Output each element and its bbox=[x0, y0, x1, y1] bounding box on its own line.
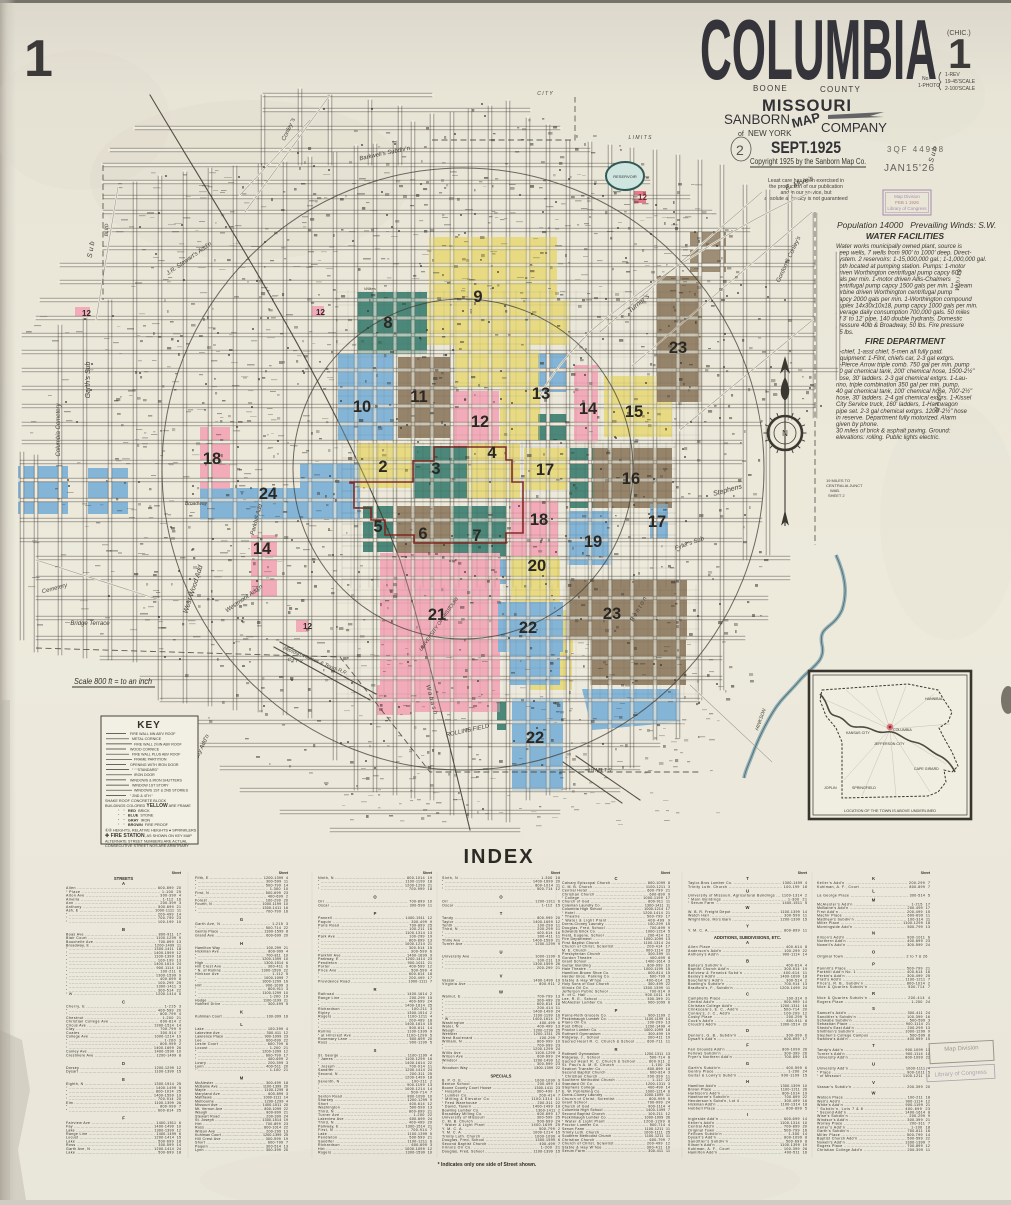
svg-text:“ W .........................: “ W ....................................… bbox=[66, 992, 181, 996]
svg-text:turbine driven Worthington cen: turbine driven Worthington centrifugal p… bbox=[836, 290, 953, 296]
svg-text:Grand Ave ....................: Grand Ave ..............................… bbox=[195, 933, 288, 937]
svg-text:duplex 14x30x10x18, pump capcy: duplex 14x30x10x18, pump capcy 1000 gals… bbox=[836, 303, 978, 309]
svg-text:3: 3 bbox=[431, 460, 440, 478]
svg-text:No.: No. bbox=[922, 76, 930, 82]
svg-text:22: 22 bbox=[526, 729, 544, 747]
svg-text:8: 8 bbox=[383, 314, 392, 332]
svg-text:“ “ RED BRICK: “ “ RED BRICK bbox=[118, 809, 150, 813]
svg-text:1-chief, 1-asst chief, 5-men a: 1-chief, 1-asst chief, 5-men all fully p… bbox=[836, 349, 943, 355]
svg-text:FIRE WALL PLUS ABV ROOF: FIRE WALL PLUS ABV ROOF bbox=[132, 753, 181, 757]
svg-text:Sheet: Sheet bbox=[279, 871, 289, 875]
svg-text:13: 13 bbox=[532, 385, 550, 403]
svg-text:Y. M. C. A. ..................: Y. M. C. A. ............................… bbox=[688, 928, 807, 932]
svg-text:OPENING WITH IRON DOOR: OPENING WITH IRON DOOR bbox=[130, 763, 179, 767]
svg-text:Wilkes: Wilkes bbox=[364, 286, 376, 291]
svg-text:19-45′SCALE: 19-45′SCALE bbox=[945, 79, 976, 85]
svg-text:14: 14 bbox=[579, 400, 598, 418]
svg-text:14: 14 bbox=[253, 540, 272, 558]
svg-text:16: 16 bbox=[622, 470, 640, 488]
svg-text:pipe set. 2-3 gal chemical ext: pipe set. 2-3 gal chemical extgrs. 1200'… bbox=[835, 408, 968, 415]
svg-text:Rogers Place .................: Rogers Place ...........................… bbox=[817, 1000, 930, 1004]
svg-text:absolute accuracy is not guara: absolute accuracy is not guaranteed bbox=[764, 196, 847, 202]
svg-text:INDEX: INDEX bbox=[463, 846, 534, 868]
svg-text:WINDOWS & IRON SHUTTERS: WINDOWS & IRON SHUTTERS bbox=[130, 778, 183, 782]
svg-text:WATER FACILITIES: WATER FACILITIES bbox=[866, 231, 945, 241]
svg-text:L I M I T S: L I M I T S bbox=[589, 768, 613, 774]
svg-text:“ ............................: “ ......................................… bbox=[318, 887, 432, 891]
svg-text:Columbia Cemetery: Columbia Cemetery bbox=[56, 402, 62, 456]
svg-text:Bradford’s, F., Subdiv’n .....: Bradford’s, F., Subdiv’n ...............… bbox=[688, 986, 807, 990]
svg-text:“ “ BLUE STONE: “ “ BLUE STONE bbox=[118, 814, 154, 818]
svg-text:Sheet: Sheet bbox=[423, 871, 433, 875]
svg-text:Sheet: Sheet bbox=[798, 871, 808, 875]
svg-text:Hubbell Drive ................: Hubbell Drive ..........................… bbox=[195, 1002, 288, 1006]
svg-text:LOCATION OF THE TOWN IS ABOVE: LOCATION OF THE TOWN IS ABOVE UNDERLINED bbox=[844, 808, 936, 813]
svg-text:KEY: KEY bbox=[137, 720, 161, 731]
svg-text:Dysart’s Add’n ...............: Dysart’s Add’n .........................… bbox=[688, 1037, 807, 1041]
svg-text:Vassar’s Subdiv’n ............: Vassar’s Subdiv’n ......................… bbox=[817, 1085, 930, 1089]
svg-text:12: 12 bbox=[471, 413, 489, 431]
svg-text:12: 12 bbox=[638, 193, 647, 202]
svg-text:12: 12 bbox=[82, 309, 91, 318]
svg-text:Average daily consumption 700,: Average daily consumption 700,000 gals. … bbox=[835, 310, 970, 316]
svg-text:HANNIBAL: HANNIBAL bbox=[925, 697, 943, 701]
svg-text:KANSAS CITY: KANSAS CITY bbox=[846, 731, 870, 735]
svg-text:Sheet: Sheet bbox=[661, 871, 671, 875]
svg-text:FIRE WALL 2½IN ABV ROOF: FIRE WALL 2½IN ABV ROOF bbox=[134, 742, 182, 746]
svg-text:“ 2ND & 4TH “: “ 2ND & 4TH “ bbox=[130, 794, 154, 798]
svg-text:Scale 800 ft = to an inch: Scale 800 ft = to an inch bbox=[74, 677, 152, 686]
svg-text:capcy 2000 gals per min. 1-Wor: capcy 2000 gals per min. 1-Worthington c… bbox=[836, 297, 972, 303]
svg-text:18: 18 bbox=[530, 511, 548, 529]
svg-text:Map Division: Map Division bbox=[894, 194, 920, 199]
svg-text:FIRE DEPARTMENT: FIRE DEPARTMENT bbox=[865, 336, 946, 346]
svg-text:1: 1 bbox=[948, 30, 971, 77]
svg-text:IRON DOOR: IRON DOOR bbox=[134, 773, 155, 777]
svg-text:Providence Road ..............: Providence Road ........................… bbox=[318, 980, 432, 984]
svg-text:17: 17 bbox=[648, 513, 666, 531]
svg-text:“ ............................: “ ......................................… bbox=[442, 966, 560, 970]
svg-text:FIRE WALL 6IN AB’V ROOF: FIRE WALL 6IN AB’V ROOF bbox=[130, 732, 176, 736]
svg-text:30 miles of brick & asphalt pa: 30 miles of brick & asphalt paving. Grou… bbox=[836, 429, 951, 435]
svg-text:Sheet: Sheet bbox=[551, 871, 561, 875]
svg-text:Ross .........................: Ross ...................................… bbox=[318, 1041, 432, 1045]
svg-text:COLUMBIA: COLUMBIA bbox=[893, 728, 912, 732]
svg-text:WOOD CORNICE: WOOD CORNICE bbox=[130, 747, 160, 751]
svg-text:11: 11 bbox=[410, 388, 427, 406]
svg-text:Turner Ave ...................: Turner Ave .............................… bbox=[442, 942, 560, 946]
svg-text:of 3' to 12' pipe, 140 double: of 3' to 12' pipe, 140 double hydrants. … bbox=[836, 317, 962, 323]
svg-text:BLVD: BLVD bbox=[104, 223, 110, 236]
svg-text:Oscar ........................: Oscar ..................................… bbox=[442, 904, 560, 908]
svg-text:12: 12 bbox=[303, 622, 312, 631]
svg-text:RESERVOIR: RESERVOIR bbox=[613, 174, 637, 179]
svg-text:23: 23 bbox=[603, 605, 621, 623]
svg-text:CONSECUTIVE STREET NOS ARE ARB: CONSECUTIVE STREET NOS ARE ARBITRARY bbox=[105, 844, 189, 848]
svg-text:JEFFERSON CITY: JEFFERSON CITY bbox=[874, 742, 905, 746]
svg-text:NEW YORK: NEW YORK bbox=[748, 129, 792, 138]
svg-text:elevations: rolling. Public li: elevations: rolling. Public lights elect… bbox=[836, 435, 940, 441]
svg-text:2-100′SCALE: 2-100′SCALE bbox=[945, 86, 976, 92]
svg-text:Copyright 1925 by the Sanborn: Copyright 1925 by the Sanborn Map Co. bbox=[750, 157, 866, 166]
svg-text:Crouch’s Add’n ...............: Crouch’s Add’n .........................… bbox=[688, 1023, 807, 1027]
svg-text:hose, 30' ladders. 2-3 gal che: hose, 30' ladders. 2-3 gal chemical extg… bbox=[836, 376, 967, 382]
svg-text:40 gal chemical tank, 200' che: 40 gal chemical tank, 200' chemical hose… bbox=[836, 368, 975, 375]
svg-text:Dysart .......................: Dysart .................................… bbox=[66, 1070, 181, 1074]
svg-text:Original Town ................: Original Town ..........................… bbox=[817, 955, 930, 959]
svg-text:C I T Y: C I T Y bbox=[537, 91, 553, 97]
svg-text:METAL CORNICE: METAL CORNICE bbox=[132, 737, 162, 741]
svg-text:WINDOW 1ST STORY: WINDOW 1ST STORY bbox=[132, 784, 169, 788]
svg-text:Equipment: 1-Flint, chiefs car: Equipment: 1-Flint, chiefs car, 2-3 gal … bbox=[836, 356, 955, 362]
svg-text:Broadway: Broadway bbox=[185, 501, 208, 507]
svg-text:“ ............................: “ ......................................… bbox=[66, 1108, 181, 1112]
svg-text:WINDOWS 1ST & 2ND STORIES: WINDOWS 1ST & 2ND STORIES bbox=[134, 789, 189, 793]
svg-text:BOONE: BOONE bbox=[753, 84, 788, 93]
svg-text:Library of Congress: Library of Congress bbox=[887, 206, 927, 211]
svg-text:“ ............................: “ ......................................… bbox=[66, 920, 181, 924]
svg-text:Swallow’s Add’n ..............: Swallow’s Add’n ........................… bbox=[817, 1037, 930, 1041]
svg-text:“ ............................: “ ......................................… bbox=[195, 1068, 288, 1072]
svg-text:1: 1 bbox=[24, 30, 53, 88]
svg-text:Virginia Ave .................: Virginia Ave ...........................… bbox=[442, 982, 560, 986]
svg-text:2: 2 bbox=[736, 142, 744, 158]
svg-text:2: 2 bbox=[378, 458, 387, 476]
svg-text:6: 6 bbox=[418, 525, 427, 543]
svg-text:ALTERNATE STREET NUMBERS ARE A: ALTERNATE STREET NUMBERS ARE ACTUAL bbox=[105, 839, 187, 843]
svg-text:in reserve. Department fully m: in reserve. Department fully motorized. … bbox=[836, 415, 956, 421]
svg-text:deep wells, 7 wells from 900': deep wells, 7 wells from 900' to 1000' d… bbox=[836, 251, 971, 257]
svg-text:12: 12 bbox=[316, 308, 325, 317]
svg-text:Douglas, Fred, School ........: Douglas, Fred, School ..................… bbox=[442, 1149, 560, 1153]
svg-text:SEPT.1925: SEPT.1925 bbox=[771, 138, 841, 157]
svg-text:1-REV: 1-REV bbox=[945, 72, 960, 78]
svg-text:Sheet: Sheet bbox=[921, 871, 931, 875]
svg-text:1-PHOTO: 1-PHOTO bbox=[918, 83, 940, 89]
svg-text:18: 18 bbox=[203, 450, 221, 468]
svg-text:5: 5 bbox=[373, 518, 382, 536]
svg-text:COUNTY: COUNTY bbox=[820, 85, 861, 94]
svg-text:pressure 40lb & Broadway, 50 l: pressure 40lb & Broadway, 50 lbs. Fire p… bbox=[835, 323, 965, 329]
svg-text:JOPLIN: JOPLIN bbox=[824, 786, 837, 790]
svg-text:COMPANY: COMPANY bbox=[821, 120, 887, 135]
svg-text:17: 17 bbox=[536, 461, 554, 479]
svg-text:Kuhlman Court ................: Kuhlman Court ..........................… bbox=[195, 1015, 288, 1019]
svg-text:COLUMBIA: COLUMBIA bbox=[700, 3, 937, 98]
svg-text:“ of Missouri ...............: “ of Missouri ..........................… bbox=[817, 1074, 930, 1078]
svg-text:SHEET 2: SHEET 2 bbox=[828, 493, 845, 498]
svg-text:Christian College Add’n ......: Christian College Add’n ................… bbox=[817, 1148, 930, 1152]
svg-text:“ “ GRAY IRON: “ “ GRAY IRON bbox=[118, 818, 150, 822]
svg-text:9: 9 bbox=[473, 288, 482, 306]
svg-text:Woodson Way ..................: Woodson Way ............................… bbox=[442, 1066, 560, 1070]
svg-text:centrifugal pump capcy 1500 ga: centrifugal pump capcy 1500 gals per min… bbox=[836, 284, 972, 290]
svg-text:Anthony’s Add’n ..............: Anthony’s Add’n ........................… bbox=[688, 953, 807, 957]
svg-text:10: 10 bbox=[353, 398, 371, 416]
svg-text:Crestmere Ave ................: Crestmere Ave ..........................… bbox=[66, 1053, 181, 1057]
svg-text:20: 20 bbox=[528, 557, 546, 575]
svg-text:Sheet: Sheet bbox=[172, 871, 182, 875]
svg-text:22: 22 bbox=[519, 619, 537, 637]
svg-text:“ ............................: “ ......................................… bbox=[195, 910, 288, 914]
svg-text:hose, 30' ladders. 2-4 gal che: hose, 30' ladders. 2-4 gal chemical extg… bbox=[836, 396, 972, 402]
svg-text:driven Worthington centrifugal: driven Worthington centrifugal pump capc… bbox=[836, 270, 962, 276]
svg-text:Hamilton Add’n ...............: Hamilton Add’n .........................… bbox=[688, 1151, 807, 1155]
svg-text:Water works municipally owned: Water works municipally owned plant, sou… bbox=[836, 244, 962, 250]
svg-text:N: N bbox=[782, 429, 788, 438]
svg-text:L I M I T S: L I M I T S bbox=[629, 135, 653, 141]
svg-text:Lynn .........................: Lynn ...................................… bbox=[195, 1148, 288, 1152]
svg-text:Serum Farm ...................: Serum Farm .............................… bbox=[562, 1149, 670, 1153]
svg-text:Bridge Terrace: Bridge Terrace bbox=[70, 621, 110, 627]
svg-text:Nowell’s Add’n ...............: Nowell’s Add’n .........................… bbox=[817, 943, 930, 947]
svg-text:gals per min. 1-motor driven A: gals per min. 1-motor driven Allis-Chalm… bbox=[836, 277, 951, 283]
svg-text:7: 7 bbox=[472, 527, 481, 545]
svg-text:SPRINGFIELD: SPRINGFIELD bbox=[852, 786, 876, 790]
svg-text:Nice & Quarles Subdiv’n ......: Nice & Quarles Subdiv’n ................… bbox=[817, 985, 930, 989]
svg-text:Fryer’s Northern Add’n .......: Fryer’s Northern Add’n .................… bbox=[688, 1055, 807, 1059]
svg-text:19: 19 bbox=[584, 533, 602, 551]
svg-text:Guitar & Lowry’s Subd’n ......: Guitar & Lowry’s Subd’n ................… bbox=[688, 1073, 807, 1077]
svg-text:Oscar ........................: Oscar ..................................… bbox=[318, 904, 432, 908]
svg-text:15: 15 bbox=[625, 403, 643, 421]
svg-text:CAPE GIRARD: CAPE GIRARD bbox=[914, 767, 939, 771]
svg-text:23: 23 bbox=[669, 339, 687, 357]
svg-text:system. 2 reservoirs: 1-15,000: system. 2 reservoirs: 1-15,000,000 gal.;… bbox=[836, 257, 986, 263]
svg-text:rino, triple combination 350 g: rino, triple combination 350 gal per min… bbox=[836, 382, 959, 388]
svg-text:40 gal chemical tank, 100' che: 40 gal chemical tank, 100' chemical hose… bbox=[836, 388, 973, 395]
svg-text:SANBORN: SANBORN bbox=[724, 111, 790, 127]
svg-text:Rogers .......................: Rogers .................................… bbox=[318, 1151, 432, 1155]
svg-text:Lake .........................: Lake ...................................… bbox=[66, 1151, 181, 1155]
svg-text:Sacred Heart R. C. Church & Sc: Sacred Heart R. C. Church & School .....… bbox=[562, 1039, 670, 1043]
svg-text:JAN15'26: JAN15'26 bbox=[884, 163, 935, 174]
svg-text:both located at pumping statio: both located at pumping station. Pumps: … bbox=[836, 264, 966, 270]
svg-text:“ “ BROWN FIRE PROOF: “ “ BROWN FIRE PROOF bbox=[118, 823, 169, 827]
svg-text:“ “ “STANDARD”: “ “ “STANDARD” bbox=[132, 768, 159, 772]
svg-text:24: 24 bbox=[259, 485, 278, 503]
svg-text:FEB 1 1926: FEB 1 1926 bbox=[895, 200, 919, 205]
svg-text:given by phone.: given by phone. bbox=[836, 422, 878, 428]
svg-text:Garth’s Sub: Garth’s Sub bbox=[85, 361, 92, 398]
svg-text:FRAME PARTITION: FRAME PARTITION bbox=[134, 758, 167, 762]
svg-text:Wright Bros. Mo’s Barn .......: Wright Bros. Mo’s Barn .................… bbox=[688, 917, 807, 921]
svg-text:4: 4 bbox=[487, 444, 497, 462]
svg-text:①② HEIGHTS, RELATIVE HEIGHTS ●: ①② HEIGHTS, RELATIVE HEIGHTS ● SPRINKLER… bbox=[105, 829, 197, 833]
svg-text:1-Pierce Arrow triple comb. 75: 1-Pierce Arrow triple comb. 750 gal per … bbox=[836, 363, 970, 369]
svg-text:Population 14000 Prevailing: Population 14000 Prevailing Winds: S.W. bbox=[837, 220, 996, 230]
svg-text:University Add’n .............: University Add’n .......................… bbox=[817, 1056, 930, 1060]
svg-text:“ ............................: “ ......................................… bbox=[442, 887, 560, 891]
svg-text:* Indicates only one side of S: * Indicates only one side of Street show… bbox=[438, 1162, 537, 1168]
svg-text:Hubbell Place ................: Hubbell Place ..........................… bbox=[688, 1106, 807, 1110]
svg-text:McAlester Lumber Co. .........: McAlester Lumber Co. ...................… bbox=[562, 1001, 670, 1005]
svg-text:Morningside Add’n ............: Morningside Add’n ......................… bbox=[817, 925, 930, 929]
